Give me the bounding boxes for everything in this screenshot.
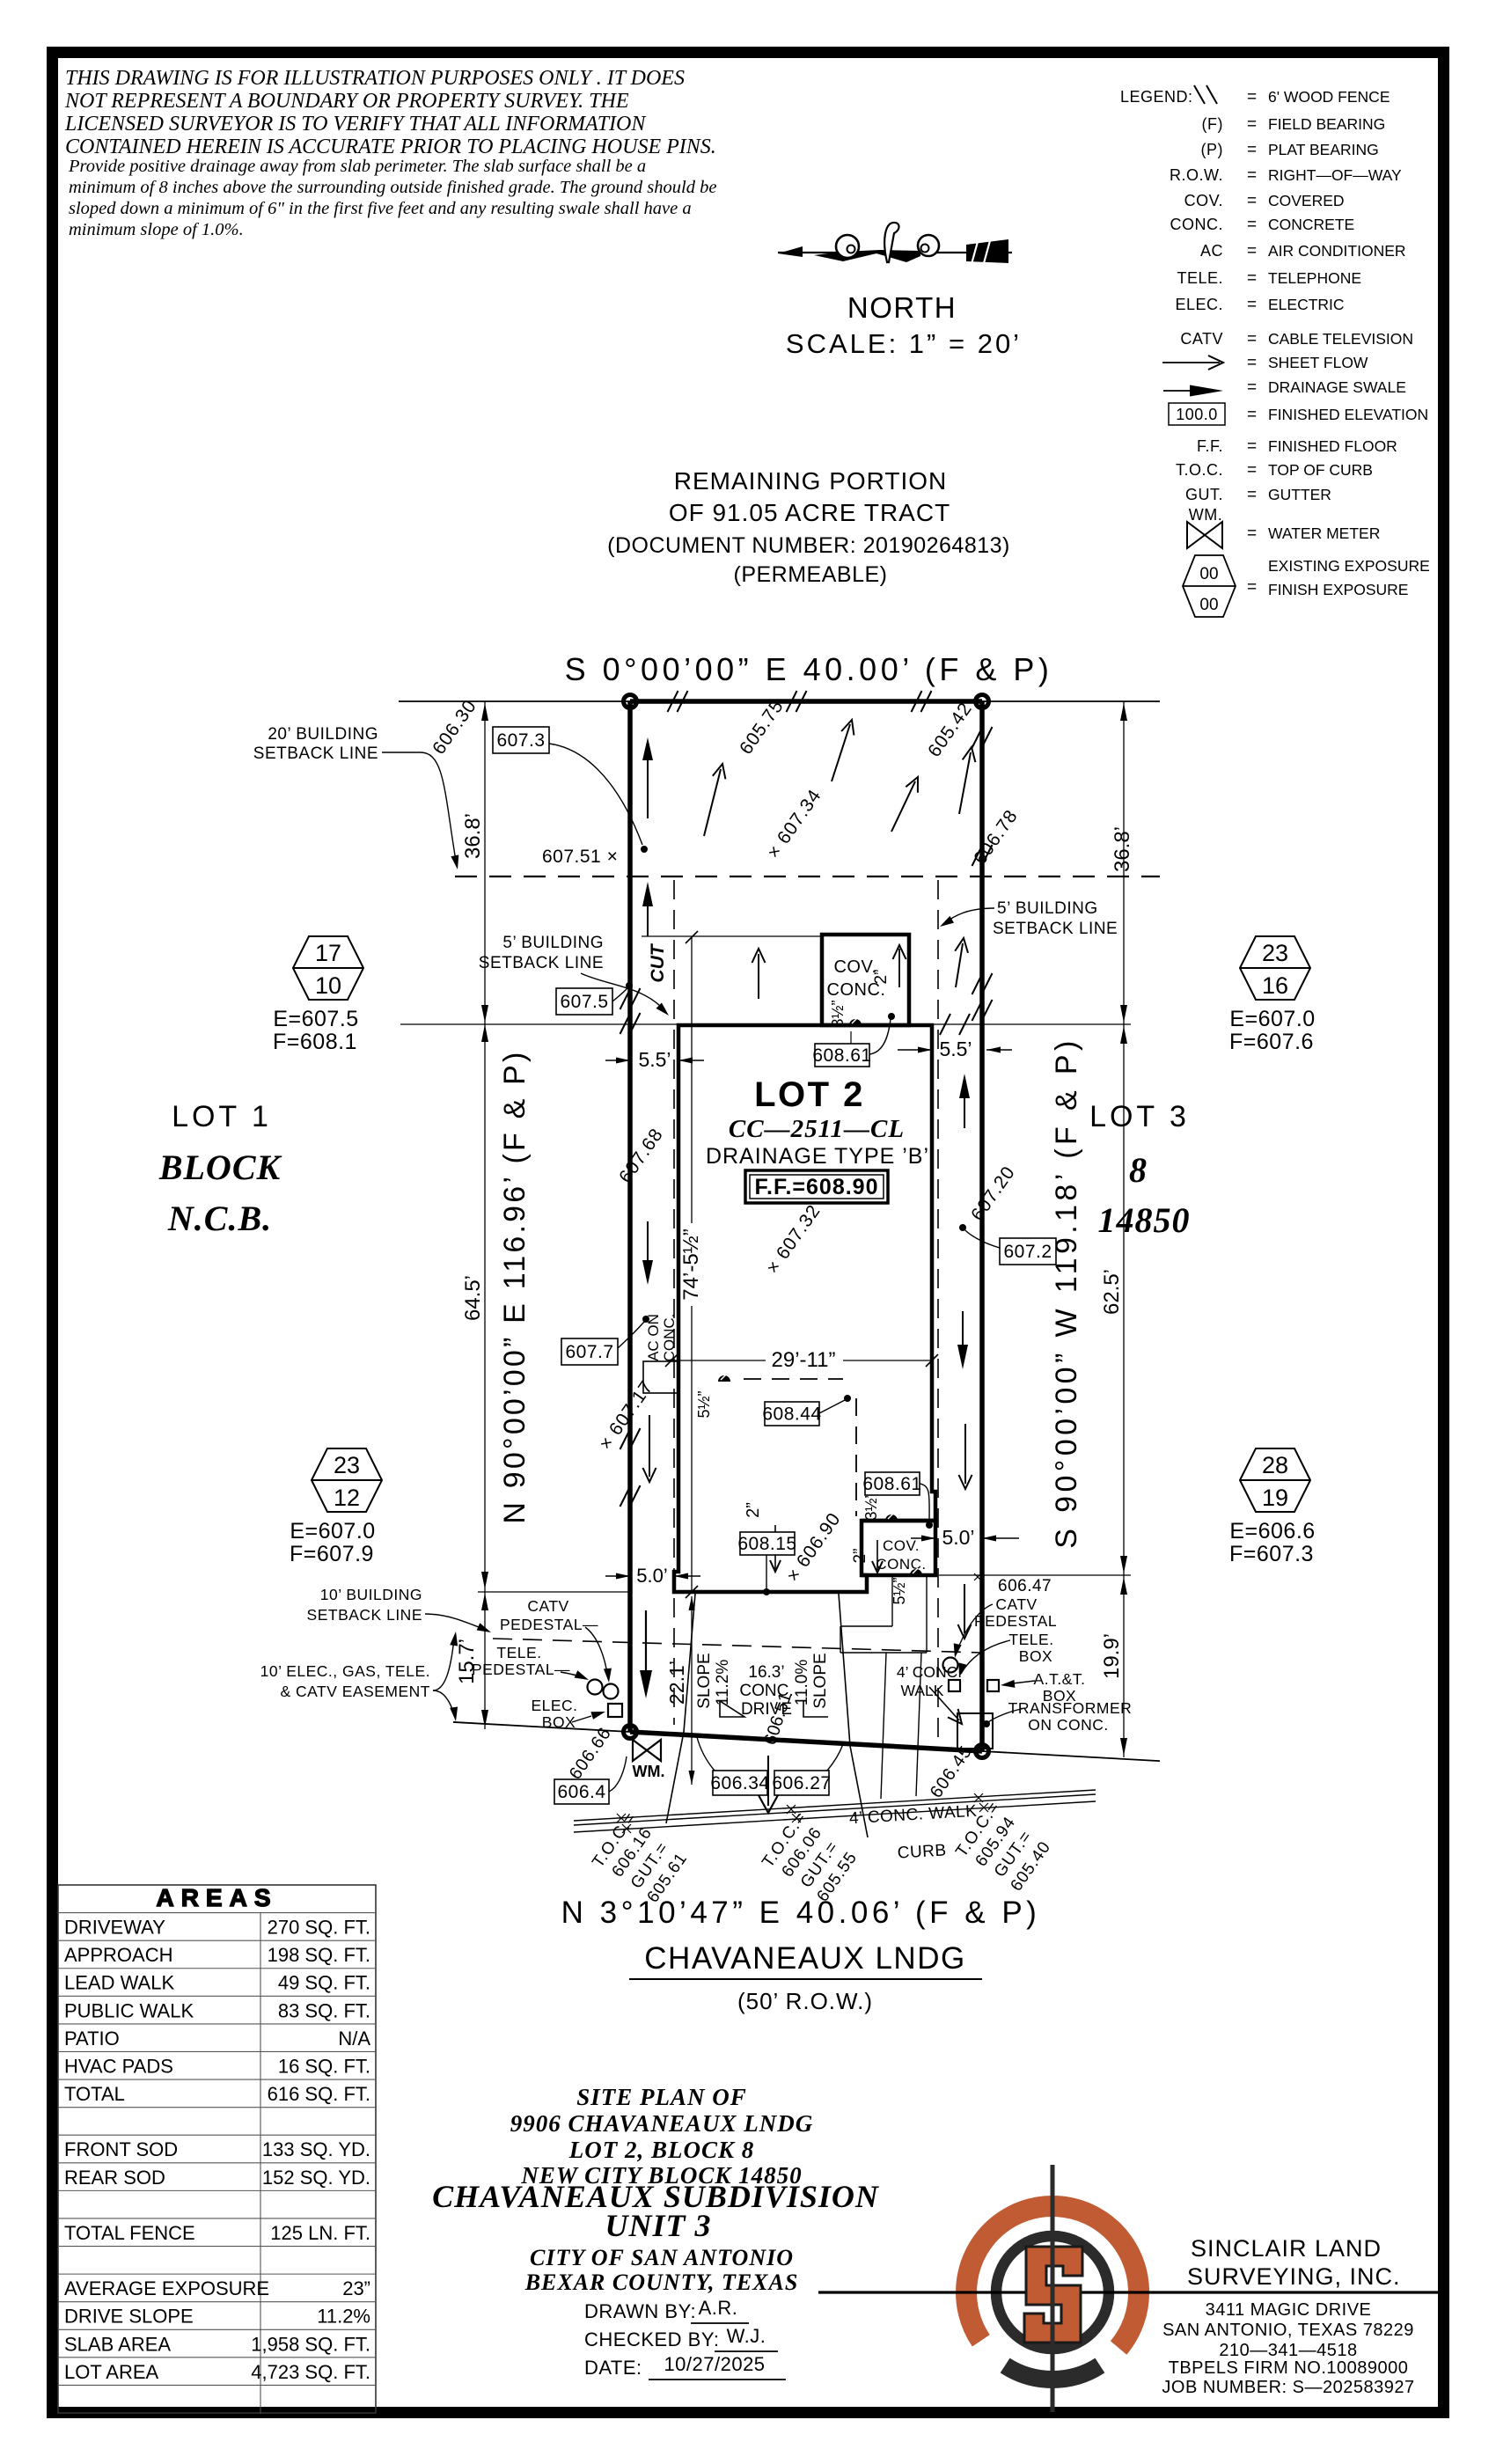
svg-text:BOX: BOX (1019, 1647, 1052, 1665)
svg-text:5.5’: 5.5’ (638, 1048, 671, 1071)
svg-text:23”: 23” (342, 2277, 370, 2299)
svg-text:F=607.9: F=607.9 (290, 1542, 374, 1566)
svg-text:E=607.0: E=607.0 (1229, 1007, 1315, 1031)
svg-text:F.F.=608.90: F.F.=608.90 (755, 1175, 879, 1199)
svg-text:5’ BUILDING: 5’ BUILDING (502, 934, 604, 952)
svg-text:NOT REPRESENT A BOUNDARY OR PR: NOT REPRESENT A BOUNDARY OR PROPERTY SUR… (64, 90, 629, 113)
svg-text:T.O.C.: T.O.C. (1176, 461, 1223, 479)
svg-text:4,723 SQ. FT.: 4,723 SQ. FT. (251, 2361, 370, 2383)
svg-text:100.0: 100.0 (1176, 406, 1218, 423)
svg-text:83 SQ. FT.: 83 SQ. FT. (278, 1999, 370, 2021)
svg-text:N/A: N/A (338, 2028, 370, 2050)
svg-text:FINISHED ELEVATION: FINISHED ELEVATION (1268, 406, 1428, 423)
svg-text:FIELD BEARING: FIELD BEARING (1268, 115, 1385, 133)
svg-text:210—341—4518: 210—341—4518 (1219, 2341, 1357, 2360)
svg-text:SETBACK LINE: SETBACK LINE (993, 920, 1118, 938)
svg-text:(PERMEABLE): (PERMEABLE) (734, 562, 888, 587)
svg-text:SITE PLAN OF: SITE PLAN OF (576, 2084, 747, 2110)
svg-text:607.7: 607.7 (565, 1342, 613, 1362)
svg-text:TELEPHONE: TELEPHONE (1268, 269, 1361, 287)
svg-text:WATER METER: WATER METER (1268, 524, 1380, 542)
svg-text:CATV: CATV (1180, 330, 1223, 348)
svg-text:REMAINING PORTION: REMAINING PORTION (674, 467, 948, 495)
svg-text:LEAD WALK: LEAD WALK (64, 1972, 174, 1994)
svg-text:PEDESTAL: PEDESTAL (974, 1612, 1057, 1630)
svg-text:WM.: WM. (633, 1763, 665, 1780)
svg-text:11.2%: 11.2% (317, 2306, 370, 2328)
svg-text:(50’ R.O.W.): (50’ R.O.W.) (737, 1988, 873, 2014)
svg-text:PUBLIC WALK: PUBLIC WALK (64, 1999, 194, 2021)
svg-text:SETBACK LINE: SETBACK LINE (253, 744, 378, 763)
svg-text:5.0’: 5.0’ (636, 1565, 667, 1587)
svg-text:(F): (F) (1202, 115, 1223, 133)
svg-text:CURB: CURB (897, 1841, 947, 1862)
svg-text:LOT AREA: LOT AREA (64, 2361, 159, 2383)
svg-text:CATV: CATV (995, 1595, 1037, 1613)
svg-text:PLAT BEARING: PLAT BEARING (1268, 141, 1379, 158)
svg-text:00: 00 (1199, 596, 1218, 614)
svg-text:3½”: 3½” (862, 1492, 880, 1520)
svg-text:607.3: 607.3 (496, 730, 545, 751)
svg-text:SINCLAIR LAND: SINCLAIR LAND (1191, 2235, 1382, 2262)
svg-text:8: 8 (1129, 1150, 1147, 1190)
svg-text:23: 23 (334, 1452, 360, 1478)
svg-text:DRAWN BY:: DRAWN BY: (584, 2300, 696, 2322)
svg-text:10: 10 (315, 972, 341, 999)
svg-text:R.O.W.: R.O.W. (1170, 166, 1223, 184)
svg-text:minimum slope of 1.0%.: minimum slope of 1.0%. (69, 220, 244, 239)
svg-text:29’-11”: 29’-11” (772, 1348, 836, 1372)
svg-text:TOTAL FENCE: TOTAL FENCE (64, 2222, 195, 2244)
svg-text:270 SQ. FT.: 270 SQ. FT. (268, 1917, 370, 1939)
svg-text:A.R.: A.R. (699, 2297, 738, 2319)
svg-text:608.61: 608.61 (862, 1474, 921, 1494)
svg-text:74’-5½”: 74’-5½” (679, 1228, 703, 1300)
svg-text:198 SQ. FT.: 198 SQ. FT. (268, 1944, 370, 1966)
svg-text:E=606.6: E=606.6 (1229, 1519, 1315, 1544)
svg-text:CITY OF SAN ANTONIO: CITY OF SAN ANTONIO (530, 2245, 794, 2270)
svg-text:CONTAINED HEREIN IS ACCURATE P: CONTAINED HEREIN IS ACCURATE PRIOR TO PL… (65, 136, 716, 158)
svg-text:00: 00 (1199, 565, 1218, 583)
svg-text:E=607.5: E=607.5 (273, 1007, 358, 1031)
svg-text:62.5’: 62.5’ (1100, 1269, 1124, 1315)
svg-text:F=608.1: F=608.1 (273, 1030, 357, 1054)
svg-text:LOT 3: LOT 3 (1089, 1100, 1190, 1133)
svg-text:sloped down a minimum of 6" in: sloped down a minimum of 6" in the first… (69, 199, 692, 218)
svg-text:17: 17 (315, 940, 341, 966)
svg-text:THIS DRAWING IS FOR ILLUSTRATI: THIS DRAWING IS FOR ILLUSTRATION PURPOSE… (65, 67, 685, 90)
svg-text:=: = (1247, 216, 1257, 234)
svg-text:SLAB AREA: SLAB AREA (64, 2333, 171, 2355)
svg-text:LOT 2: LOT 2 (754, 1075, 865, 1114)
svg-text:N 90°00’00” E 116.96’ (F: N 90°00’00” E 116.96’ (F & P) (498, 1049, 532, 1523)
svg-text:ELECTRIC: ELECTRIC (1268, 296, 1345, 313)
svg-text:=: = (1247, 406, 1257, 424)
svg-text:ELEC.: ELEC. (1175, 296, 1223, 313)
svg-text:606.4: 606.4 (557, 1782, 605, 1802)
svg-text:NORTH: NORTH (847, 291, 957, 324)
svg-text:LOT 1: LOT 1 (172, 1100, 272, 1133)
svg-text:PEDESTAL—: PEDESTAL— (500, 1616, 598, 1633)
svg-text:=: = (1247, 242, 1257, 260)
svg-text:S 90°00’00” W 119.18’ (F: S 90°00’00” W 119.18’ (F & P) (1050, 1037, 1083, 1549)
svg-text:=: = (1247, 354, 1257, 372)
svg-text:Provide positive drainage away: Provide positive drainage away from slab… (68, 157, 646, 176)
svg-text:11.2%: 11.2% (714, 1660, 732, 1706)
svg-text:(DOCUMENT NUMBER: 2019026481: (DOCUMENT NUMBER: 20190264813) (607, 533, 1010, 558)
svg-text:2”: 2” (872, 970, 891, 985)
svg-text:=: = (1247, 192, 1257, 210)
svg-text:133 SQ. YD.: 133 SQ. YD. (262, 2138, 370, 2160)
svg-text:=: = (1247, 378, 1257, 397)
svg-text:=: = (1247, 437, 1257, 456)
svg-text:36.8’: 36.8’ (461, 813, 485, 859)
svg-text:607.5: 607.5 (560, 992, 608, 1012)
svg-text:12: 12 (334, 1485, 360, 1511)
svg-text:REAR SOD: REAR SOD (64, 2167, 165, 2189)
svg-text:=: = (1247, 115, 1257, 134)
svg-text:TELE.: TELE. (1008, 1631, 1053, 1648)
svg-text:COV.: COV. (833, 957, 876, 977)
svg-text:607.2: 607.2 (1003, 1242, 1052, 1262)
svg-text:49 SQ. FT.: 49 SQ. FT. (278, 1972, 370, 1994)
svg-text:SLOPE: SLOPE (811, 1653, 830, 1708)
svg-text:=: = (1247, 269, 1257, 288)
svg-text:2”: 2” (851, 1549, 869, 1564)
svg-text:=: = (1247, 578, 1257, 597)
svg-text:AREAS: AREAS (156, 1884, 277, 1911)
svg-text:606.34: 606.34 (710, 1773, 769, 1793)
svg-text:F=607.3: F=607.3 (1229, 1542, 1314, 1566)
svg-text:14850: 14850 (1098, 1200, 1191, 1240)
svg-text:& CATV EASEMENT: & CATV EASEMENT (280, 1683, 430, 1700)
svg-text:DRAINAGE SWALE: DRAINAGE SWALE (1268, 378, 1406, 396)
svg-text:CC—2511—CL: CC—2511—CL (729, 1115, 905, 1143)
svg-text:FINISH EXPOSURE: FINISH EXPOSURE (1268, 581, 1408, 598)
svg-text:COV.: COV. (883, 1537, 920, 1554)
svg-text:LICENSED SURVEYOR IS TO VERIFY: LICENSED SURVEYOR IS TO VERIFY THAT ALL … (64, 113, 647, 136)
svg-text:3½”: 3½” (829, 1000, 847, 1027)
svg-text:OF 91.05 ACRE TRACT: OF 91.05 ACRE TRACT (669, 499, 950, 526)
svg-text:CUT: CUT (648, 942, 668, 982)
svg-text:TRANSFORMER: TRANSFORMER (1008, 1699, 1133, 1717)
svg-text:N.C.B.: N.C.B. (167, 1199, 272, 1238)
svg-text:TELE.: TELE. (496, 1644, 541, 1661)
svg-text:608.44: 608.44 (762, 1404, 821, 1425)
svg-text:1,958 SQ. FT.: 1,958 SQ. FT. (251, 2333, 370, 2355)
svg-text:CONC.: CONC. (1170, 216, 1224, 233)
svg-text:608.61: 608.61 (812, 1045, 871, 1066)
svg-text:AC: AC (1200, 242, 1223, 260)
svg-text:COV.: COV. (1184, 192, 1223, 209)
svg-text:PATIO: PATIO (64, 2028, 120, 2050)
svg-text:BEXAR COUNTY, TEXAS: BEXAR COUNTY, TEXAS (524, 2270, 799, 2295)
svg-text:DATE:: DATE: (584, 2357, 642, 2379)
svg-text:19.9’: 19.9’ (1100, 1633, 1124, 1679)
svg-text:CHAVANEAUX LNDG: CHAVANEAUX LNDG (644, 1941, 965, 1976)
svg-text:CONC.: CONC. (661, 1314, 678, 1362)
svg-text:11.0%: 11.0% (793, 1660, 811, 1706)
svg-text:36.8’: 36.8’ (1111, 826, 1134, 872)
svg-text:9906 CHAVANEAUX LNDG: 9906 CHAVANEAUX LNDG (510, 2110, 814, 2137)
svg-text:5.0’: 5.0’ (942, 1526, 974, 1549)
svg-text:S 0°00’00” E 40.00’ (F &: S 0°00’00” E 40.00’ (F & P) (565, 651, 1053, 687)
svg-text:ON CONC.: ON CONC. (1028, 1716, 1109, 1734)
svg-text:RIGHT—OF—WAY: RIGHT—OF—WAY (1268, 166, 1402, 184)
svg-text:HVAC PADS: HVAC PADS (64, 2055, 173, 2077)
svg-text:TELE.: TELE. (1177, 269, 1223, 287)
svg-text:GUTTER: GUTTER (1268, 486, 1331, 503)
svg-text:=: = (1247, 166, 1257, 185)
svg-text:=: = (1247, 88, 1257, 106)
svg-text:TOP OF CURB: TOP OF CURB (1268, 461, 1373, 479)
svg-text:LEGEND:: LEGEND: (1120, 88, 1193, 106)
svg-text:608.15: 608.15 (737, 1534, 796, 1554)
svg-text:=: = (1247, 486, 1257, 504)
svg-text:A.T.&T.: A.T.&T. (1034, 1670, 1086, 1688)
svg-text:64.5’: 64.5’ (461, 1275, 485, 1321)
svg-text:125 LN. FT.: 125 LN. FT. (270, 2222, 370, 2244)
svg-text:CHECKED BY:: CHECKED BY: (584, 2328, 719, 2350)
svg-text:SETBACK LINE: SETBACK LINE (307, 1606, 422, 1624)
svg-text:10’ BUILDING: 10’ BUILDING (320, 1586, 422, 1603)
svg-text:CATV: CATV (527, 1597, 568, 1615)
svg-text:5½”: 5½” (695, 1390, 713, 1418)
svg-text:N 3°10’47” E 40.06’ (F &: N 3°10’47” E 40.06’ (F & P) (561, 1896, 1041, 1930)
svg-text:JOB NUMBER: S—202583927: JOB NUMBER: S—202583927 (1162, 2378, 1414, 2397)
svg-text:23: 23 (1262, 940, 1288, 966)
svg-text:SETBACK LINE: SETBACK LINE (479, 954, 604, 972)
svg-text:PEDESTAL—: PEDESTAL— (472, 1661, 570, 1678)
svg-text:3411 MAGIC DRIVE: 3411 MAGIC DRIVE (1206, 2300, 1372, 2320)
svg-text:10’ ELEC., GAS, TELE.: 10’ ELEC., GAS, TELE. (260, 1662, 430, 1680)
svg-text:606.47: 606.47 (998, 1577, 1052, 1595)
svg-text:5½”: 5½” (891, 1577, 908, 1604)
svg-text:28: 28 (1262, 1452, 1288, 1478)
svg-text:16: 16 (1262, 972, 1288, 999)
svg-text:AIR CONDITIONER: AIR CONDITIONER (1268, 242, 1406, 260)
svg-text:10/27/2025: 10/27/2025 (664, 2353, 765, 2375)
svg-text:22.1’: 22.1’ (665, 1661, 688, 1705)
svg-text:=: = (1247, 330, 1257, 348)
svg-text:SLOPE: SLOPE (695, 1653, 714, 1708)
svg-text:APPROACH: APPROACH (64, 1944, 172, 1966)
svg-text:=: = (1247, 141, 1257, 159)
svg-text:COVERED: COVERED (1268, 192, 1345, 209)
svg-text:5’ BUILDING: 5’ BUILDING (997, 899, 1098, 918)
svg-text:ELEC.: ELEC. (531, 1697, 577, 1714)
svg-text:(P): (P) (1201, 141, 1224, 158)
svg-text:WM.: WM. (1189, 506, 1222, 524)
svg-text:F=607.6: F=607.6 (1229, 1030, 1314, 1054)
svg-text:F.F.: F.F. (1197, 437, 1223, 455)
svg-text:16 SQ. FT.: 16 SQ. FT. (278, 2055, 370, 2077)
svg-text:2”: 2” (744, 1502, 763, 1518)
svg-text:=: = (1247, 296, 1257, 314)
svg-text:616 SQ. FT.: 616 SQ. FT. (268, 2083, 370, 2105)
svg-text:SURVEYING, INC.: SURVEYING, INC. (1187, 2263, 1401, 2290)
svg-text:=: = (1247, 524, 1257, 543)
svg-text:BLOCK: BLOCK (158, 1148, 282, 1187)
svg-text:CABLE TELEVISION: CABLE TELEVISION (1268, 330, 1413, 348)
svg-text:TOTAL: TOTAL (64, 2083, 125, 2105)
svg-text:UNIT 3: UNIT 3 (605, 2208, 712, 2243)
svg-text:EXISTING EXPOSURE: EXISTING EXPOSURE (1268, 557, 1430, 575)
svg-text:DRIVE SLOPE: DRIVE SLOPE (64, 2306, 194, 2328)
svg-text:16.3’: 16.3’ (748, 1663, 784, 1682)
svg-text:CONCRETE: CONCRETE (1268, 216, 1354, 233)
svg-text:AVERAGE EXPOSURE: AVERAGE EXPOSURE (64, 2277, 269, 2299)
svg-text:W.J.: W.J. (727, 2325, 766, 2347)
svg-text:152 SQ. YD.: 152 SQ. YD. (262, 2167, 370, 2189)
svg-text:=: = (1247, 461, 1257, 480)
svg-text:20’ BUILDING: 20’ BUILDING (268, 725, 378, 744)
svg-text:606.27: 606.27 (772, 1773, 831, 1793)
svg-text:5.5’: 5.5’ (939, 1038, 972, 1060)
svg-text:TBPELS FIRM NO.10089000: TBPELS FIRM NO.10089000 (1169, 2358, 1409, 2378)
svg-text:DRAINAGE TYPE ’B’: DRAINAGE TYPE ’B’ (706, 1144, 929, 1169)
svg-text:LOT 2, BLOCK 8: LOT 2, BLOCK 8 (568, 2137, 755, 2163)
svg-text:SAN ANTONIO, TEXAS 78229: SAN ANTONIO, TEXAS 78229 (1162, 2321, 1414, 2340)
svg-text:19: 19 (1262, 1485, 1288, 1511)
svg-text:607.51 ×: 607.51 × (542, 847, 618, 867)
svg-text:SHEET FLOW: SHEET FLOW (1268, 354, 1368, 371)
svg-text:SCALE: 1” = 20’: SCALE: 1” = 20’ (786, 328, 1022, 359)
svg-text:BOX: BOX (542, 1713, 576, 1731)
svg-text:DRIVEWAY: DRIVEWAY (64, 1917, 165, 1939)
svg-text:FRONT SOD: FRONT SOD (64, 2138, 178, 2160)
svg-text:E=607.0: E=607.0 (290, 1519, 375, 1544)
svg-text:minimum of 8 inches above the: minimum of 8 inches above the surroundin… (69, 178, 716, 197)
svg-text:FINISHED FLOOR: FINISHED FLOOR (1268, 437, 1397, 455)
svg-text:6' WOOD FENCE: 6' WOOD FENCE (1268, 88, 1390, 106)
svg-text:GUT.: GUT. (1185, 486, 1223, 503)
